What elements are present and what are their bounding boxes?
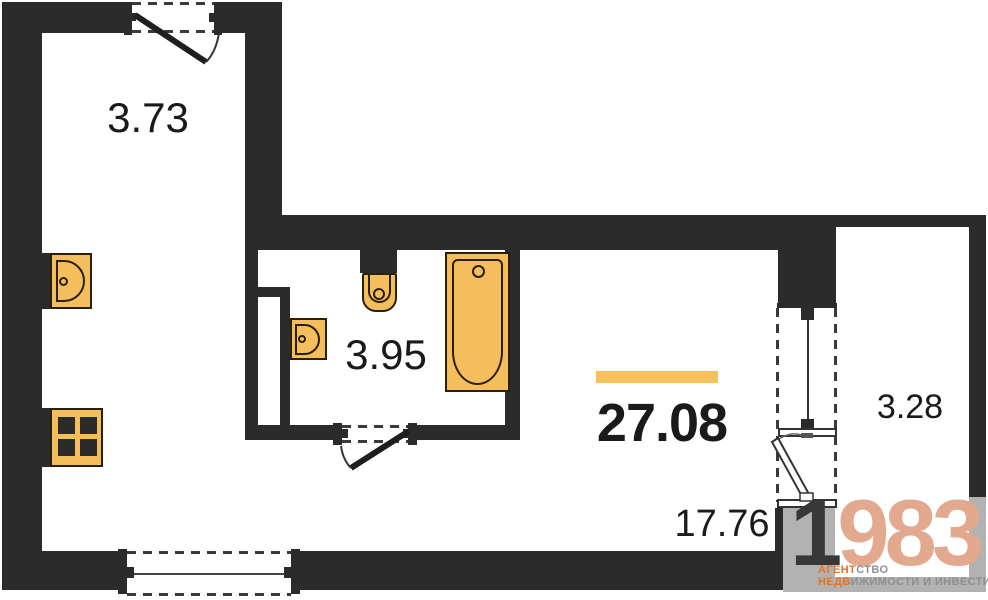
entrance-door-arc — [206, 33, 219, 62]
agency-logo: 1983 АГЕНТСТВО НЕДВИЖИМОСТИ И ИНВЕСТИЦИЙ — [788, 490, 988, 600]
floor-plan: 3.73 3.95 27.08 17.76 3.28 1983 АГЕНТСТВ… — [0, 0, 988, 600]
agency-logo-line1: АГЕНТСТВО — [818, 565, 888, 576]
entrance-door-leaf — [135, 15, 206, 62]
bathroom-door-leaf — [351, 431, 409, 468]
bathroom-door-arc — [341, 446, 351, 468]
agency-logo-line2: НЕДВИЖИМОСТИ И ИНВЕСТИЦИЙ — [818, 577, 988, 588]
